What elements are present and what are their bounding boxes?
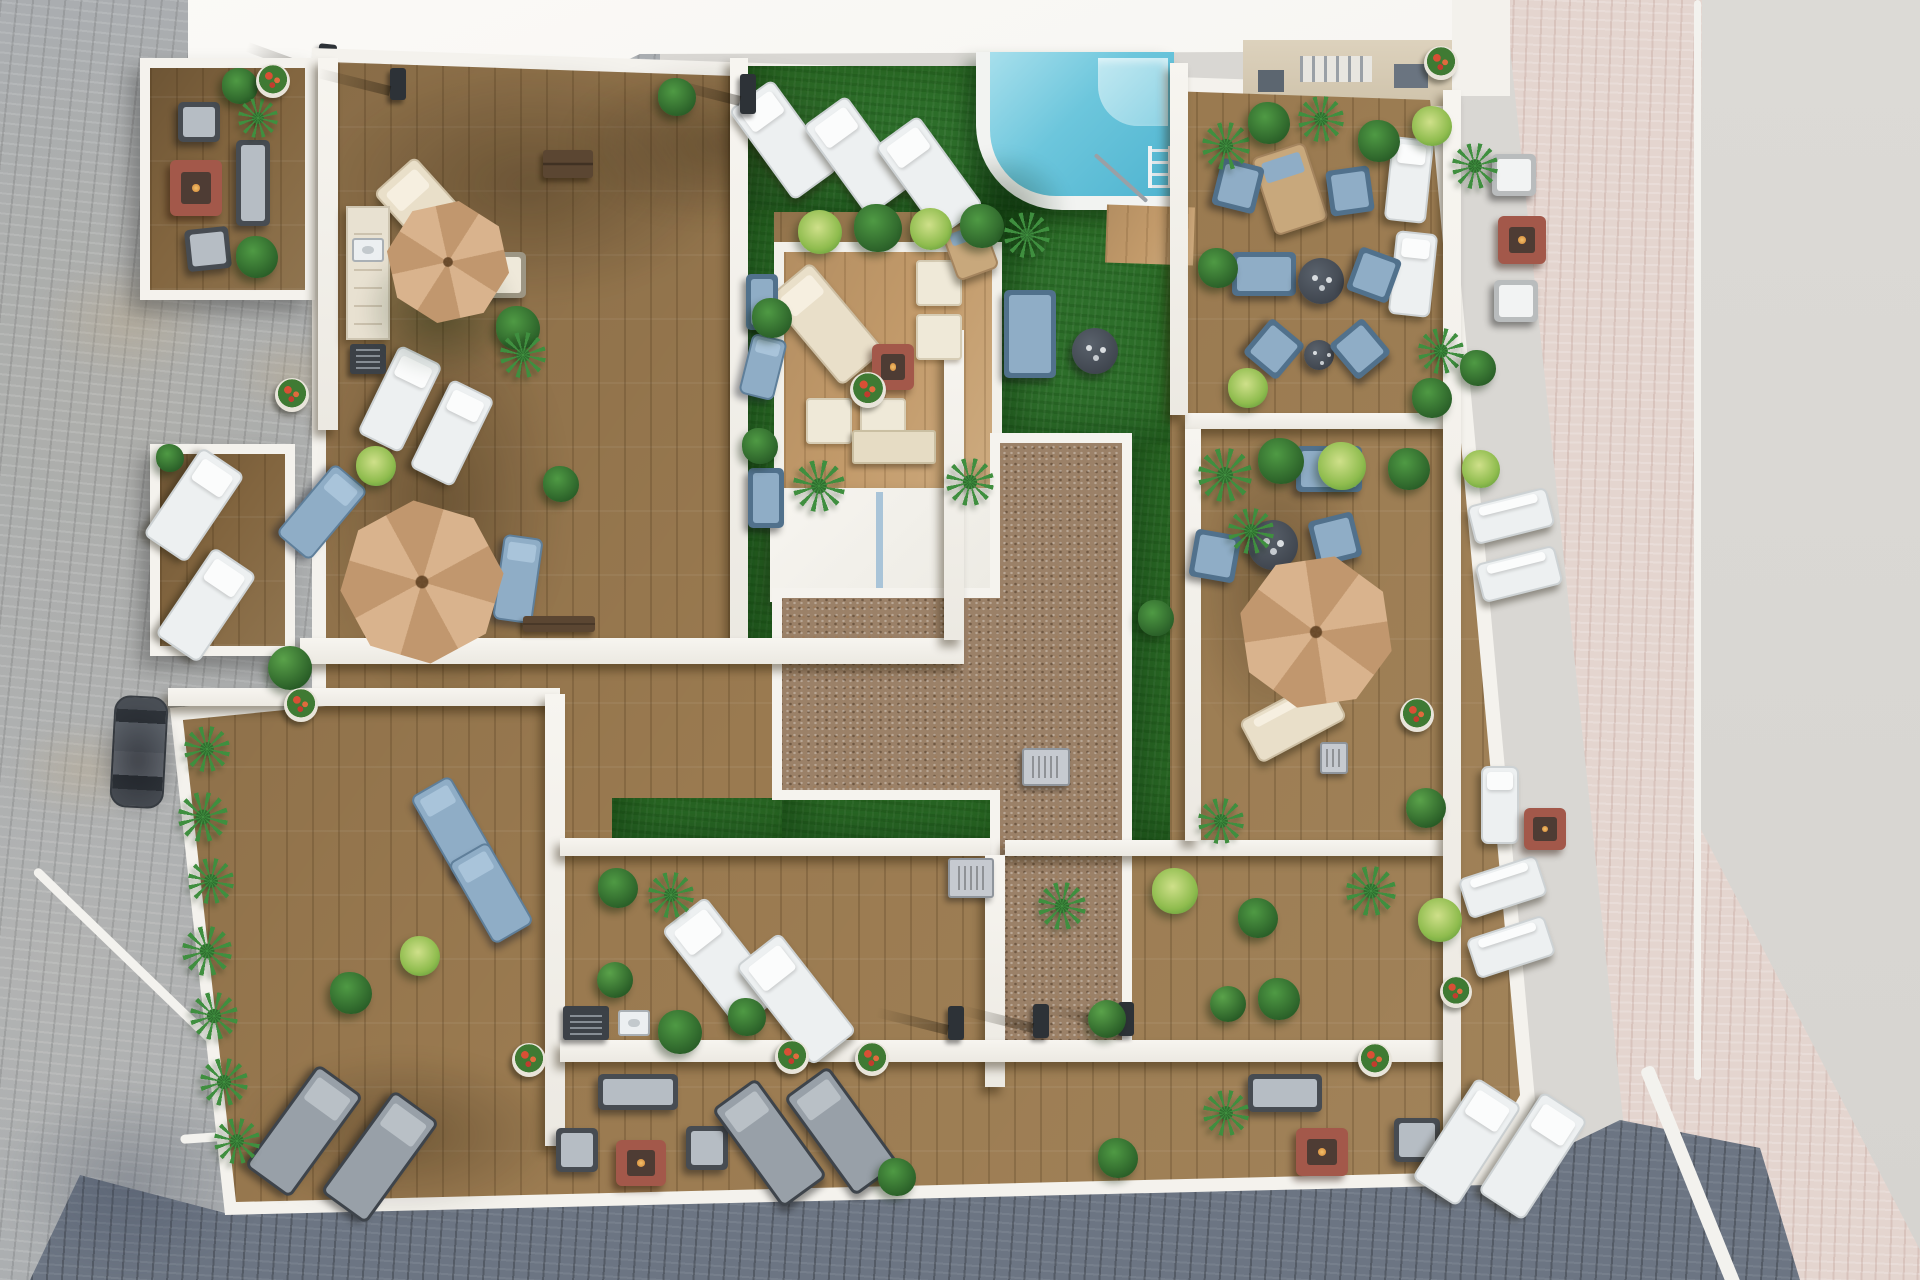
bush (1358, 120, 1400, 162)
bush (1198, 248, 1238, 288)
bush (742, 428, 778, 464)
lawn-right-strip (1132, 443, 1170, 840)
picnic-bench (543, 150, 593, 178)
flower-pot (275, 378, 309, 412)
lime-plant (400, 936, 440, 976)
flower-pot (1424, 46, 1458, 80)
floor-cushion (916, 314, 962, 360)
bush (598, 868, 638, 908)
wall-pool-right (1170, 63, 1188, 415)
palm-plant (238, 98, 278, 138)
bush (1238, 898, 1278, 938)
palm-plant (500, 332, 546, 378)
flower-pot (850, 372, 886, 408)
armchair (1494, 280, 1538, 322)
sun-lounger (1474, 545, 1563, 604)
bush (854, 204, 902, 252)
bush (1460, 350, 1496, 386)
flower-pot (256, 64, 290, 98)
palm-plant (946, 458, 994, 506)
bush (878, 1158, 916, 1196)
palm-plant (1203, 1090, 1249, 1136)
armchair (1492, 154, 1536, 196)
armchair (686, 1126, 728, 1170)
round-table (1298, 258, 1344, 304)
flower-pot (512, 1043, 546, 1077)
bush (1138, 600, 1174, 636)
bush (543, 466, 579, 502)
wall-kitchen (318, 58, 338, 430)
flower-pot (1440, 976, 1472, 1008)
sun-lounger (1481, 766, 1519, 844)
wall-bl-top (168, 688, 560, 706)
palm-plant (214, 1118, 260, 1164)
lime-plant (1418, 898, 1462, 942)
bush (752, 298, 792, 338)
neighbor-balcony (1300, 56, 1372, 82)
topiary-ball (1406, 788, 1446, 828)
topiary-ball (268, 646, 312, 690)
topiary-ball (1088, 1000, 1126, 1038)
armchair (556, 1128, 598, 1172)
flower-pot (1400, 698, 1434, 732)
wall-tl-lawn-divider (730, 58, 748, 638)
sofa (1248, 1074, 1322, 1112)
lime-plant (798, 210, 842, 254)
car-shadow (96, 700, 180, 820)
wall-bl-right (545, 694, 565, 1146)
topiary-ball (597, 962, 633, 998)
floor-cushion (806, 398, 852, 444)
palm-plant (1198, 448, 1252, 502)
palm-plant (190, 992, 238, 1040)
street-curb (1694, 0, 1701, 1080)
corner-white-block (1452, 0, 1510, 96)
palm-plant (1038, 882, 1086, 930)
sofa (598, 1074, 678, 1110)
flower-pot (855, 1042, 889, 1076)
lime-plant (1318, 442, 1366, 490)
bench (523, 616, 595, 632)
bush (156, 444, 184, 472)
neighbor-window (1258, 70, 1284, 92)
fire-table (1296, 1128, 1348, 1176)
lime-plant (1152, 868, 1198, 914)
ac-unit (948, 858, 994, 898)
sofa (1232, 252, 1296, 296)
bush (1258, 978, 1300, 1020)
palm-plant (200, 1058, 248, 1106)
bench (852, 430, 936, 464)
sofa (1004, 290, 1056, 378)
sofa (236, 140, 270, 226)
palm-plant (1418, 328, 1464, 374)
palm-plant (1198, 798, 1244, 844)
lime-plant (1462, 450, 1500, 488)
wall-lawnstrip-right (1185, 429, 1201, 841)
core-roof-pipe (876, 492, 883, 598)
lime-plant (356, 446, 396, 486)
palm-plant (1452, 143, 1498, 189)
lamp-post (740, 74, 756, 114)
wall-tr-horizontal (1185, 413, 1447, 429)
rooftop-aerial-render (0, 0, 1920, 1280)
bush (236, 236, 278, 278)
fire-table (616, 1140, 666, 1186)
armchair (1325, 165, 1375, 217)
neighbor-window (1394, 64, 1428, 88)
fire-table (170, 160, 222, 216)
pool-ladder (1148, 146, 1172, 188)
bush (330, 972, 372, 1014)
flower-pot (284, 688, 318, 722)
palm-plant (182, 926, 232, 976)
bush (1258, 438, 1304, 484)
lawn-below-roof (612, 798, 782, 840)
bush (1388, 448, 1430, 490)
bush (960, 204, 1004, 248)
armchair (178, 102, 220, 142)
wall-bc-top (560, 838, 990, 856)
topiary-ball (1210, 986, 1246, 1022)
lime-plant (1228, 368, 1268, 408)
palm-plant (1202, 122, 1250, 170)
palm-plant (188, 858, 234, 904)
flower-pot (775, 1040, 809, 1074)
grill (563, 1006, 609, 1040)
armchair (184, 226, 232, 272)
sink (618, 1010, 650, 1036)
ac-unit (1022, 748, 1070, 786)
bush (658, 1010, 702, 1054)
lamp-post (390, 68, 406, 100)
palm-plant (793, 460, 845, 512)
bush (728, 998, 766, 1036)
bush (1248, 102, 1290, 144)
flower-pot (1358, 1043, 1392, 1077)
sofa (748, 468, 784, 528)
fire-table (1498, 216, 1546, 264)
bush (1098, 1138, 1138, 1178)
bush (658, 78, 696, 116)
palm-plant (178, 792, 228, 842)
ac-unit (1320, 742, 1348, 774)
fire-table (1524, 808, 1566, 850)
lime-plant (1412, 106, 1452, 146)
round-table (1072, 328, 1118, 374)
bush (1412, 378, 1452, 418)
palm-plant (184, 726, 230, 772)
lime-plant (910, 208, 952, 250)
palm-plant (1004, 212, 1050, 258)
palm-plant (1346, 866, 1396, 916)
palm-plant (648, 872, 694, 918)
lawn-below-gravel (782, 798, 990, 840)
palm-plant (1228, 508, 1274, 554)
palm-plant (1298, 96, 1344, 142)
